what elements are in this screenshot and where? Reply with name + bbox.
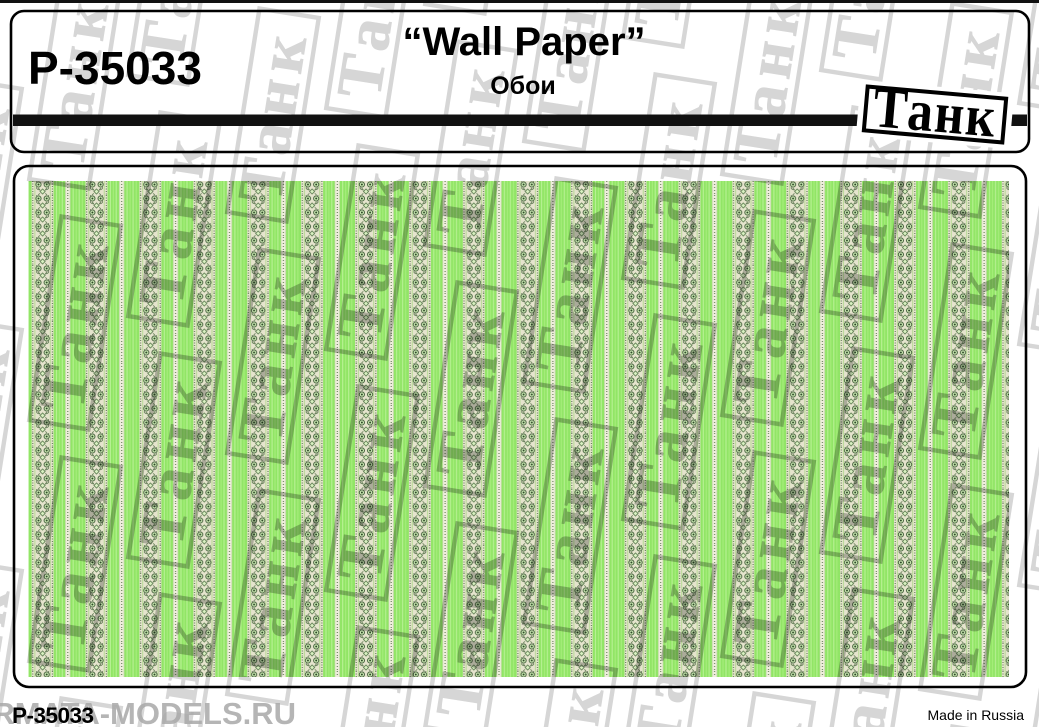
svg-text:“Wall Paper”: “Wall Paper” [402, 20, 645, 64]
svg-text:Made in Russia: Made in Russia [928, 707, 1025, 723]
svg-text:P-35033: P-35033 [12, 703, 94, 727]
svg-text:Танк: Танк [871, 74, 1000, 150]
svg-text:P-35033: P-35033 [28, 42, 202, 94]
svg-text:Обои: Обои [490, 72, 556, 100]
